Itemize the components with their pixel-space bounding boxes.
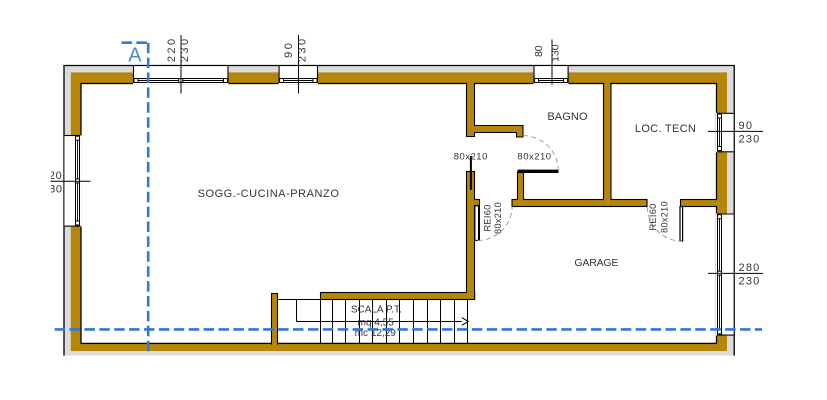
svg-text:220: 220 [166, 37, 178, 63]
svg-text:REI60: REI60 [648, 203, 658, 230]
svg-text:SCALA P.T.: SCALA P.T. [351, 305, 402, 316]
svg-text:BAGNO: BAGNO [547, 111, 588, 123]
svg-text:REI60: REI60 [483, 204, 493, 231]
svg-text:80x210: 80x210 [493, 202, 503, 234]
svg-text:230: 230 [739, 275, 761, 287]
svg-text:SOGG.-CUCINA-PRANZO: SOGG.-CUCINA-PRANZO [198, 188, 340, 200]
svg-text:130: 130 [550, 44, 562, 62]
svg-text:LOC. TECN: LOC. TECN [635, 123, 696, 135]
svg-text:GARAGE: GARAGE [574, 257, 618, 269]
svg-text:90: 90 [739, 120, 754, 132]
svg-text:280: 280 [739, 262, 761, 274]
svg-text:230: 230 [297, 37, 309, 63]
svg-text:230: 230 [179, 37, 191, 63]
svg-text:A: A [128, 45, 142, 67]
svg-text:80x210: 80x210 [517, 152, 551, 163]
svg-text:90: 90 [283, 41, 295, 58]
svg-text:80x210: 80x210 [454, 152, 488, 163]
svg-text:80: 80 [533, 45, 545, 57]
svg-text:230: 230 [739, 133, 761, 145]
svg-text:80x210: 80x210 [660, 201, 670, 233]
svg-text:mq 4,55: mq 4,55 [358, 317, 395, 328]
